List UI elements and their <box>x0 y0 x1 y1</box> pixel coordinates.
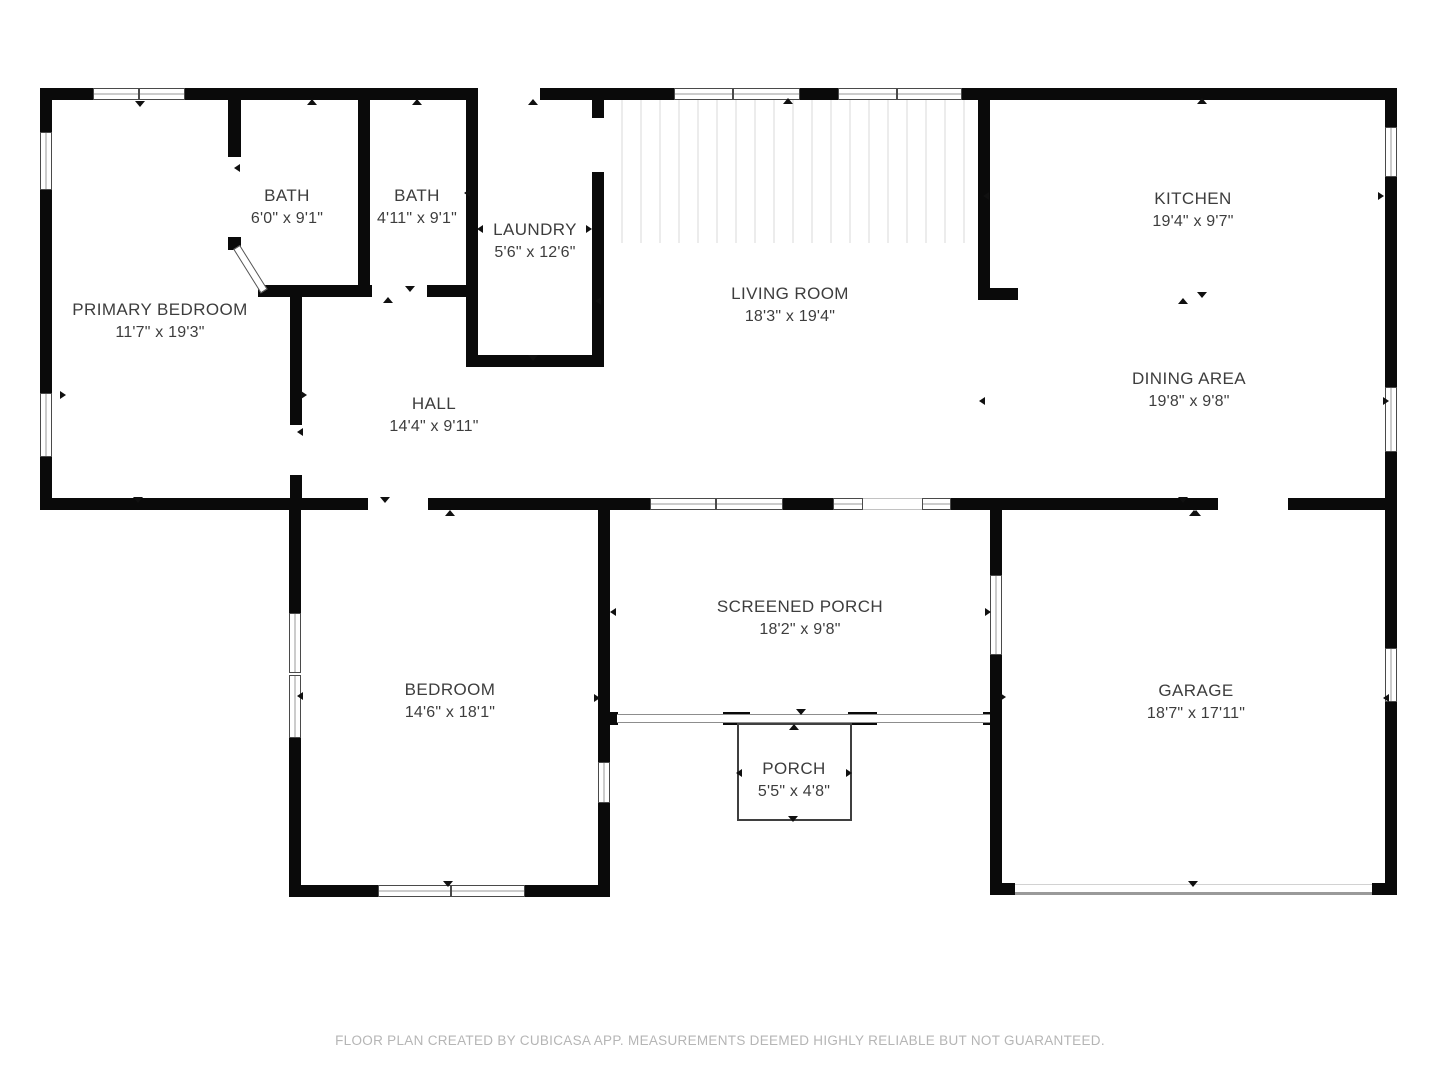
wall <box>290 297 302 425</box>
wall <box>40 498 368 510</box>
door-marker <box>796 709 806 715</box>
door-marker <box>1189 510 1199 516</box>
wall <box>598 510 610 762</box>
room-dimensions: 6'0" x 9'1" <box>251 207 323 230</box>
door-marker <box>736 769 742 777</box>
room-dimensions: 11'7" x 19'3" <box>72 321 247 344</box>
room-label-kitchen: KITCHEN19'4" x 9'7" <box>1152 187 1233 233</box>
room-name: KITCHEN <box>1152 187 1233 210</box>
room-label-laundry: LAUNDRY5'6" x 12'6" <box>493 218 577 264</box>
wall <box>592 172 604 355</box>
wall <box>40 100 52 132</box>
window <box>990 575 1002 655</box>
wall <box>800 88 838 100</box>
door-marker <box>443 881 453 887</box>
door-marker <box>301 391 307 399</box>
room-label-living-room: LIVING ROOM18'3" x 19'4" <box>731 282 849 328</box>
room-name: LAUNDRY <box>493 218 577 241</box>
wall <box>1288 498 1397 510</box>
room-dimensions: 5'5" x 4'8" <box>758 780 830 803</box>
window <box>716 498 783 510</box>
room-name: BEDROOM <box>405 678 496 701</box>
room-name: BATH <box>377 184 457 207</box>
window <box>922 498 951 510</box>
room-dimensions: 18'3" x 19'4" <box>731 305 849 328</box>
room-name: LIVING ROOM <box>731 282 849 305</box>
window <box>897 88 962 100</box>
room-dimensions: 19'4" x 9'7" <box>1152 210 1233 233</box>
door-marker <box>985 608 991 616</box>
wall <box>978 100 990 300</box>
door-marker <box>788 816 798 822</box>
window <box>833 498 863 510</box>
wall <box>228 100 241 157</box>
room-name: PRIMARY BEDROOM <box>72 298 247 321</box>
door-marker <box>586 225 592 233</box>
room-dimensions: 18'7" x 17'11" <box>1147 702 1245 725</box>
wall <box>1385 452 1397 648</box>
door-marker <box>1188 881 1198 887</box>
wall <box>978 288 1018 300</box>
room-dimensions: 14'6" x 18'1" <box>405 701 496 724</box>
door-marker <box>1197 292 1207 298</box>
door-marker <box>464 189 470 197</box>
door-marker <box>1383 397 1389 405</box>
door-marker <box>1178 497 1188 503</box>
window <box>40 132 52 190</box>
window <box>451 885 525 897</box>
room-label-porch: PORCH5'5" x 4'8" <box>758 757 830 803</box>
window <box>1385 127 1397 177</box>
door-marker <box>234 164 240 172</box>
door-marker <box>979 397 985 405</box>
door-marker <box>595 297 601 305</box>
window <box>289 675 301 738</box>
wall <box>185 88 478 100</box>
window <box>139 88 185 100</box>
door-marker <box>1178 298 1188 304</box>
door-marker <box>60 391 66 399</box>
room-name: SCREENED PORCH <box>717 595 883 618</box>
wall <box>598 803 610 897</box>
wall <box>428 498 650 510</box>
window <box>40 393 52 457</box>
door-marker <box>477 225 483 233</box>
window <box>93 88 139 100</box>
door-marker <box>297 428 303 436</box>
garage-door <box>1015 892 1372 895</box>
room-name: HALL <box>389 392 478 415</box>
wall <box>358 100 370 285</box>
room-label-primary-bedroom: PRIMARY BEDROOM11'7" x 19'3" <box>72 298 247 344</box>
window <box>838 88 897 100</box>
room-label-bath-1: BATH6'0" x 9'1" <box>251 184 323 230</box>
wall <box>1385 100 1397 127</box>
door-marker <box>405 286 415 292</box>
wall <box>540 88 674 100</box>
window <box>378 885 451 897</box>
wall <box>1385 177 1397 387</box>
door-marker <box>380 497 390 503</box>
room-label-bath-2: BATH4'11" x 9'1" <box>377 184 457 230</box>
door-marker <box>789 724 799 730</box>
wall <box>1372 883 1397 895</box>
door-marker <box>412 99 422 105</box>
room-name: PORCH <box>758 757 830 780</box>
door-marker <box>983 192 989 200</box>
wall <box>990 510 1002 575</box>
ceiling-feature-stripes <box>604 100 978 243</box>
door-marker <box>383 297 393 303</box>
room-dimensions: 19'8" x 9'8" <box>1132 390 1246 413</box>
room-dimensions: 4'11" x 9'1" <box>377 207 457 230</box>
door-marker <box>1378 192 1384 200</box>
window <box>650 498 716 510</box>
door-marker <box>1383 694 1389 702</box>
room-label-hall: HALL14'4" x 9'11" <box>389 392 478 438</box>
wall <box>1385 702 1397 895</box>
footer-disclaimer: FLOOR PLAN CREATED BY CUBICASA APP. MEAS… <box>0 1033 1440 1048</box>
wall <box>289 885 378 897</box>
wall <box>40 190 52 393</box>
screen-wall <box>617 714 990 723</box>
room-label-dining-area: DINING AREA19'8" x 9'8" <box>1132 367 1246 413</box>
room-dimensions: 14'4" x 9'11" <box>389 415 478 438</box>
door-leaf-diagonal <box>233 245 267 293</box>
room-dimensions: 5'6" x 12'6" <box>493 241 577 264</box>
room-dimensions: 18'2" x 9'8" <box>717 618 883 641</box>
room-label-bedroom: BEDROOM14'6" x 18'1" <box>405 678 496 724</box>
door-marker <box>445 510 455 516</box>
door-marker <box>307 99 317 105</box>
window <box>598 762 610 803</box>
room-label-screened-porch: SCREENED PORCH18'2" x 9'8" <box>717 595 883 641</box>
door-marker <box>594 694 600 702</box>
wall <box>40 88 93 100</box>
door-marker <box>528 99 538 105</box>
room-name: DINING AREA <box>1132 367 1246 390</box>
door-marker <box>133 497 143 503</box>
door-marker <box>135 101 145 107</box>
window <box>289 613 301 673</box>
wall <box>783 498 833 510</box>
wall <box>290 475 302 498</box>
wall <box>289 510 301 613</box>
wall <box>990 883 1015 895</box>
room-label-garage: GARAGE18'7" x 17'11" <box>1147 679 1245 725</box>
door-marker <box>528 355 538 361</box>
room-name: BATH <box>251 184 323 207</box>
wall <box>258 285 372 297</box>
door-marker <box>297 692 303 700</box>
door-marker <box>1000 693 1006 701</box>
sliding-door-opening <box>863 498 922 510</box>
wall <box>592 100 604 118</box>
door-marker <box>783 98 793 104</box>
floor-plan: FLOOR PLAN CREATED BY CUBICASA APP. MEAS… <box>0 0 1440 1080</box>
door-marker <box>1197 98 1207 104</box>
wall <box>962 88 1397 100</box>
wall <box>990 655 1002 895</box>
wall <box>289 738 301 897</box>
door-marker <box>610 608 616 616</box>
door-marker <box>846 769 852 777</box>
window <box>674 88 733 100</box>
room-name: GARAGE <box>1147 679 1245 702</box>
